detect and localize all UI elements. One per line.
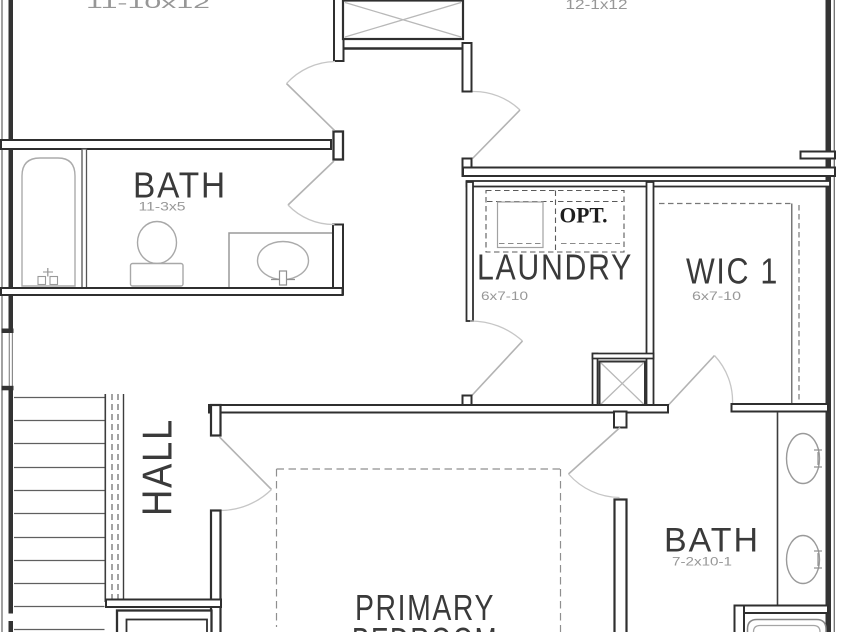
svg-text:BEDROOM: BEDROOM xyxy=(352,620,498,632)
svg-text:OPT.: OPT. xyxy=(560,203,608,228)
svg-text:HALL: HALL xyxy=(134,418,181,516)
svg-text:7-2x10-1: 7-2x10-1 xyxy=(672,555,732,569)
svg-text:WIC 1: WIC 1 xyxy=(686,251,779,292)
svg-text:12-1x12: 12-1x12 xyxy=(566,0,628,12)
svg-text:6x7-10: 6x7-10 xyxy=(481,289,528,303)
svg-text:11-10x12: 11-10x12 xyxy=(86,0,210,12)
svg-text:6x7-10: 6x7-10 xyxy=(692,289,741,303)
svg-text:LAUNDRY: LAUNDRY xyxy=(477,247,633,288)
svg-text:11-3x5: 11-3x5 xyxy=(139,200,186,214)
